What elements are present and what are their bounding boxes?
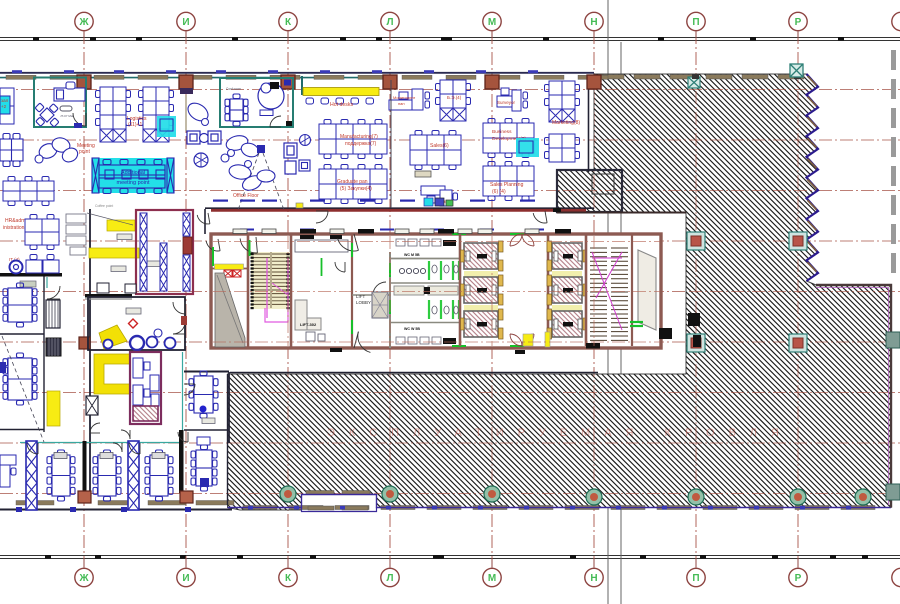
svg-text:М: М (488, 17, 496, 28)
svg-text:Office Floor: Office Floor (233, 193, 259, 199)
svg-text:LIFT: LIFT (356, 294, 366, 299)
svg-text:зал: зал (1, 98, 9, 103)
svg-text:JT-07 Mal: JT-07 Mal (60, 114, 74, 118)
svg-text:Sales(6): Sales(6) (430, 143, 449, 149)
svg-text:LIFT-302: LIFT-302 (300, 322, 317, 327)
svg-text:Мониторинг: Мониторинг (393, 95, 416, 100)
svg-text:И: И (182, 573, 189, 584)
svg-text:Graduate pan: Graduate pan (337, 179, 368, 185)
svg-text:Hot desks: Hot desks (330, 102, 353, 108)
svg-text:Sales Planning: Sales Planning (490, 182, 524, 188)
svg-text:meeting point: meeting point (116, 180, 149, 186)
svg-text:Conf room: Conf room (226, 87, 241, 91)
svg-text:Л: Л (386, 573, 393, 584)
svg-text:HR&adm: HR&adm (5, 218, 25, 224)
svg-text:Р: Р (795, 573, 802, 584)
svg-text:К: К (285, 17, 292, 28)
svg-text:М: М (488, 573, 496, 584)
svg-text:Р: Р (795, 17, 802, 28)
svg-text:+2: +2 (1, 104, 7, 109)
svg-text:WC W 5B: WC W 5B (404, 327, 420, 331)
svg-text:Coffee point: Coffee point (95, 204, 113, 208)
svg-text:Ж: Ж (78, 17, 89, 28)
svg-text:(6) (4): (6) (4) (492, 189, 506, 195)
svg-text:WC M 5B: WC M 5B (404, 253, 420, 257)
svg-text:Н: Н (590, 573, 597, 584)
svg-text:пан: пан (398, 101, 405, 106)
svg-text:(11)+1: (11)+1 (128, 122, 142, 128)
svg-text:Business: Business (492, 129, 512, 135)
svg-text:Н: Н (590, 17, 597, 28)
svg-text:Marketing(8): Marketing(8) (552, 120, 580, 126)
svg-text:П: П (692, 573, 699, 584)
svg-text:ЭКСПЛУАТИРУЕМАЯ КРОВЛЯ: ЭКСПЛУАТИРУЕМАЯ КРОВЛЯ (327, 427, 793, 439)
svg-text:Б.Э.(4): Б.Э.(4) (447, 95, 462, 100)
svg-text:point: point (79, 149, 90, 155)
svg-text:Л: Л (386, 17, 393, 28)
svg-text:Additional: Additional (121, 170, 145, 176)
svg-text:Surveyor: Surveyor (497, 100, 516, 105)
svg-text:П: П (692, 17, 699, 28)
svg-text:(5) Закупки(4): (5) Закупки(4) (340, 186, 372, 192)
svg-text:Ж: Ж (78, 573, 89, 584)
svg-text:LOBBY: LOBBY (356, 300, 371, 305)
svg-text:Manufacturing(7): Manufacturing(7) (340, 134, 378, 140)
svg-text:поддержка(7): поддержка(7) (345, 141, 377, 147)
svg-text:И: И (182, 17, 189, 28)
svg-text:К: К (285, 573, 292, 584)
